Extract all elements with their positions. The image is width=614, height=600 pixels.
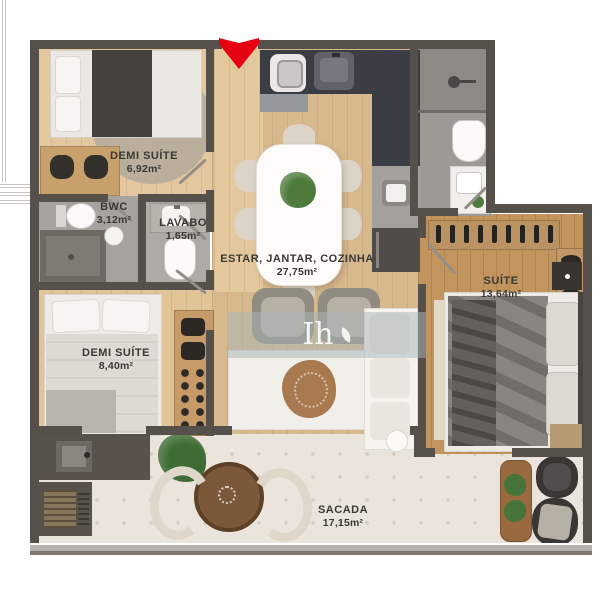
wall-top-right [258, 40, 495, 49]
room-label-demi-suite-1: DEMI SUÍTE 6,92m² [110, 150, 178, 175]
wardrobe-accessory [181, 318, 205, 336]
bench-plant [504, 500, 526, 522]
room-name: DEMI SUÍTE [110, 150, 178, 163]
room-area: 13,64m² [481, 288, 522, 300]
table-decor [218, 486, 236, 504]
room-label-demi-suite-2: DEMI SUÍTE 8,40m² [82, 347, 150, 372]
side-counter-basin [386, 184, 406, 202]
wall-top-left [30, 40, 222, 49]
hanger [464, 225, 469, 243]
counter-appliance [260, 94, 308, 112]
brand-watermark: Ih [228, 312, 426, 358]
grill-grate [78, 493, 89, 525]
vanity-basin [456, 172, 482, 194]
wall-demi2-top [36, 282, 214, 290]
pillow [55, 96, 81, 132]
floor-plan: Ih DEMI SUÍTE 6,92m² BWC 3,12m² LAVABO 1… [0, 0, 614, 600]
kitchen-faucet [332, 53, 340, 57]
window [0, 0, 9, 84]
dining-chair [234, 160, 258, 192]
room-label-lavabo: LAVABO 1,65m² [159, 217, 207, 242]
window [0, 84, 9, 182]
wall-hall [206, 270, 214, 284]
closet-hangers [436, 225, 553, 243]
kitchen-sink-basin [320, 58, 348, 82]
room-area: 1,65m² [159, 230, 207, 242]
suite-blanket-drape [452, 300, 496, 446]
balcony-railing [30, 543, 592, 555]
lounge-chair-cushion [537, 503, 573, 541]
pillow [55, 56, 81, 94]
wall-balcony-top [36, 426, 82, 435]
fridge-handle [376, 232, 379, 268]
room-label-sacada: SACADA 17,15m² [318, 504, 368, 529]
shower-drain [68, 254, 74, 260]
table-centerpiece-plant [280, 172, 316, 208]
leaf-icon [338, 327, 353, 342]
wall-jog [414, 426, 423, 457]
bbq-counter [36, 434, 150, 480]
hanger [548, 225, 553, 243]
hanger [492, 225, 497, 243]
wall-hall [206, 330, 214, 436]
shower-arm [458, 80, 476, 83]
round-sink [104, 226, 124, 246]
wall-suite-left [418, 216, 426, 238]
coffee-table-decor [294, 372, 328, 408]
fridge [372, 228, 420, 272]
wall-bwc-right [138, 194, 146, 290]
hanger [478, 225, 483, 243]
shower-divider [410, 110, 491, 113]
hanger [506, 225, 511, 243]
pillow [101, 299, 151, 333]
washing-machine-door [277, 60, 303, 88]
wall-notch-horizontal [486, 204, 592, 213]
bbq-faucet [84, 452, 90, 458]
faucet [174, 205, 180, 209]
bbq-sink-basin [62, 446, 86, 467]
room-name: DEMI SUÍTE [82, 347, 150, 360]
hanger [436, 225, 441, 243]
nightstand-knob [565, 274, 570, 279]
lounge-chair-cushion [543, 463, 571, 491]
hanger [520, 225, 525, 243]
wall-suite-bath-bottom [410, 208, 458, 216]
room-name: LAVABO [159, 217, 207, 230]
chair [50, 155, 74, 179]
room-label-suite: SUÍTE 13,64m² [481, 275, 522, 300]
wall-right [583, 204, 592, 546]
wall-suite-bottom [423, 448, 435, 457]
toilet [452, 120, 486, 162]
room-name: SUÍTE [481, 275, 522, 288]
room-name: BWC [97, 201, 131, 214]
wall-notch-vertical [486, 40, 495, 212]
wall-left [30, 40, 39, 546]
hanger [450, 225, 455, 243]
bed-throw-blanket [92, 50, 152, 137]
room-area: 3,12m² [97, 214, 131, 226]
hanger [534, 225, 539, 243]
wall-hall [206, 44, 214, 152]
entrance-arrow-icon [219, 38, 259, 70]
ottoman [386, 430, 408, 452]
toilet [66, 203, 96, 229]
shoe-rack [178, 366, 208, 430]
room-label-bwc: BWC 3,12m² [97, 201, 131, 226]
wall-balcony-top [146, 426, 212, 435]
wardrobe-accessory [181, 342, 205, 360]
wall-balcony-top [212, 426, 232, 435]
room-area: 6,92m² [110, 163, 178, 175]
grill [44, 490, 76, 528]
room-name: ESTAR, JANTAR, COZINHA [220, 253, 374, 266]
pillow [51, 299, 101, 333]
wall-demi1-bottom [140, 194, 212, 202]
suite-pillow [546, 302, 580, 366]
room-area: 17,15m² [318, 517, 368, 529]
wall-suite-bottom [512, 448, 583, 457]
wall-hall [206, 190, 214, 232]
dining-chair [234, 208, 258, 240]
toilet-tank [56, 205, 66, 227]
room-name: SACADA [318, 504, 368, 517]
nightstand [550, 424, 582, 450]
chair [84, 155, 108, 179]
wall-suite-bath-left [410, 44, 418, 216]
dining-chair [283, 124, 315, 146]
room-area: 8,40m² [82, 360, 150, 372]
brand-watermark-text: Ih [302, 320, 333, 350]
sofa-cushion [370, 358, 410, 398]
room-area: 27,75m² [220, 266, 374, 278]
room-label-living: ESTAR, JANTAR, COZINHA 27,75m² [220, 253, 374, 278]
bench-plant [504, 474, 526, 496]
